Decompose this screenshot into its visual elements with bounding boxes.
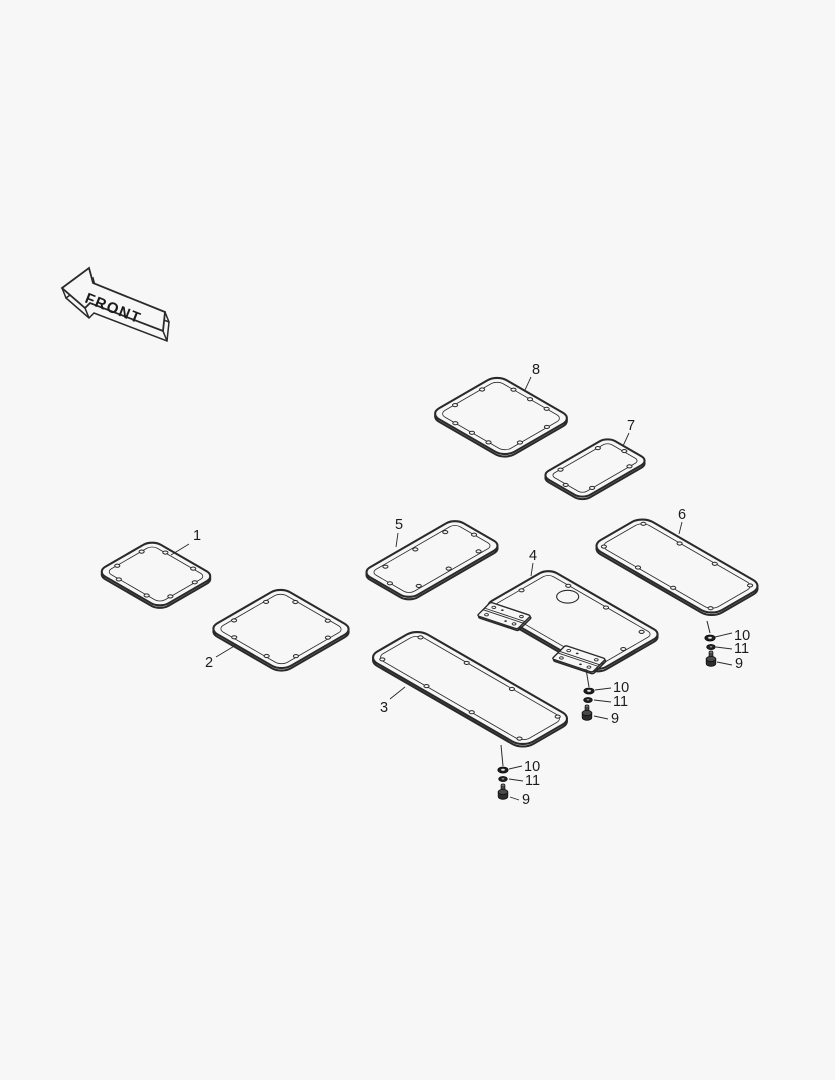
part-number-label-11[interactable]: 11 (734, 641, 749, 657)
part-number-label-8[interactable]: 8 (532, 362, 540, 378)
bolt-head-top (582, 710, 592, 715)
washer-hole (501, 769, 505, 771)
bolt-head-top (706, 656, 716, 661)
plate-outline (208, 587, 354, 672)
assembly-axis-line (707, 621, 710, 633)
leader-line (716, 647, 732, 649)
leader-line (595, 688, 611, 690)
leader-line (509, 779, 523, 781)
leader-line (594, 700, 611, 702)
washer-hole (710, 646, 713, 648)
bolt-shank-top (709, 651, 712, 653)
part-bolt-9[interactable] (582, 705, 592, 720)
panel-cover-plate-8[interactable] (427, 375, 574, 460)
leader-line (715, 633, 732, 637)
washer-hole (587, 690, 591, 692)
part-number-label-9[interactable]: 9 (522, 792, 530, 808)
washer-hole (502, 778, 505, 780)
leader-line (623, 433, 629, 446)
leader-line (396, 533, 398, 547)
part-number-label-7[interactable]: 7 (627, 418, 635, 434)
part-bolt-9[interactable] (498, 784, 508, 799)
hardware-group-middle: 10119 (582, 669, 629, 727)
leader-line (525, 377, 531, 390)
panel-cover-plate-5[interactable] (359, 518, 504, 602)
part-number-label-6[interactable]: 6 (678, 507, 686, 523)
part-number-label-2[interactable]: 2 (205, 655, 213, 671)
plate-outline (590, 516, 763, 616)
parts-diagram-canvas: 12345678101191011910119FRONT (0, 0, 835, 1080)
leader-line (717, 662, 732, 665)
panel-cover-plate-3[interactable] (365, 629, 575, 751)
plate-outline (97, 540, 216, 609)
part-flat-washer-10[interactable] (498, 767, 508, 773)
part-bolt-9[interactable] (706, 651, 716, 666)
washer-hole (708, 637, 712, 639)
bolt-shank-top (585, 705, 588, 707)
part-spring-washer-11[interactable] (499, 776, 508, 781)
washer-hole (587, 699, 590, 701)
leader-line (171, 544, 189, 555)
assembly-axis-line (501, 745, 503, 766)
leader-line (390, 687, 405, 699)
front-direction-arrow: FRONT (62, 268, 169, 341)
leader-line (594, 716, 608, 719)
leader-line (510, 797, 519, 800)
part-flat-washer-10[interactable] (705, 635, 715, 641)
leader-line (531, 563, 533, 576)
part-spring-washer-11[interactable] (584, 697, 593, 702)
leader-line (509, 766, 522, 769)
panel-cover-plate-2[interactable] (206, 587, 357, 674)
part-flat-washer-10[interactable] (584, 688, 594, 694)
part-number-label-3[interactable]: 3 (380, 700, 388, 716)
panel-cover-plate-7[interactable] (539, 437, 652, 502)
plate-outline (430, 375, 573, 458)
leader-line (679, 522, 682, 534)
exploded-parts-diagram: 12345678101191011910119FRONT (0, 0, 835, 1080)
part-number-label-9[interactable]: 9 (735, 656, 743, 672)
part-spring-washer-11[interactable] (707, 644, 716, 649)
part-number-label-9[interactable]: 9 (611, 711, 619, 727)
bolt-head-top (498, 789, 508, 794)
part-number-label-1[interactable]: 1 (193, 528, 201, 544)
bolt-shank-top (501, 784, 504, 786)
part-number-label-11[interactable]: 11 (613, 694, 628, 710)
plate-outline (367, 629, 573, 748)
hardware-group-left: 10119 (498, 745, 540, 808)
panel-cover-plate-6[interactable] (588, 516, 766, 619)
plate-outline (541, 437, 649, 500)
panel-cover-plate-1[interactable] (95, 540, 218, 611)
part-number-label-4[interactable]: 4 (529, 548, 537, 564)
part-number-label-5[interactable]: 5 (395, 517, 403, 533)
panel-cover-plate-4[interactable] (470, 568, 665, 680)
leader-line (216, 645, 236, 657)
hardware-group-right: 10119 (705, 621, 750, 672)
part-number-label-11[interactable]: 11 (525, 773, 540, 789)
